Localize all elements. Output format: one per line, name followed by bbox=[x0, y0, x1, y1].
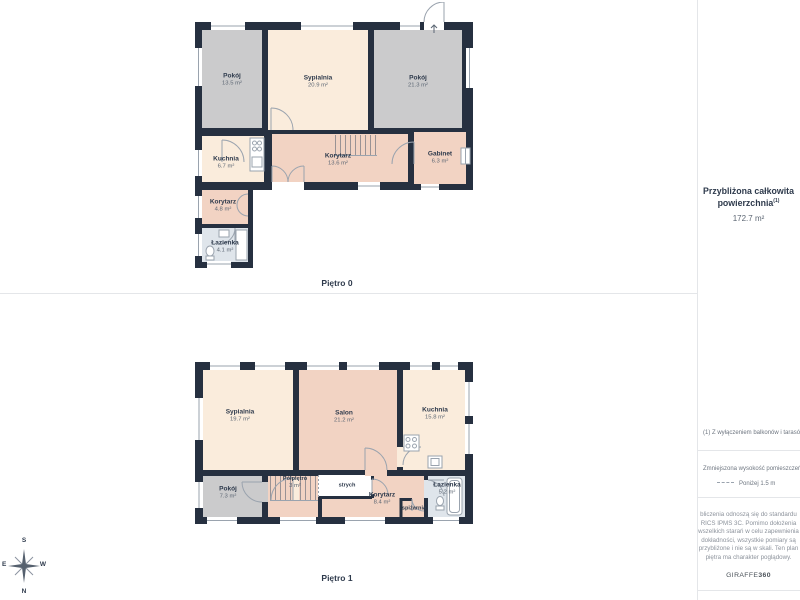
sidebar: Przybliżona całkowita powierzchnia(1) 17… bbox=[697, 0, 800, 600]
room-name: Pokój bbox=[408, 74, 428, 82]
room-name: Korytarz bbox=[325, 152, 351, 160]
room-name: Łazienka bbox=[211, 239, 238, 247]
floor1-plan: Sypialnia 19.7 m² Salon 21.2 m² Kuchnia … bbox=[195, 358, 475, 528]
room-area: 13.5 m² bbox=[222, 80, 242, 87]
room-label: Kuchnia 15.8 m² bbox=[422, 406, 448, 422]
room-area: 19.7 m² bbox=[226, 416, 255, 423]
brand-name: GIRAFFE bbox=[726, 572, 758, 579]
room-label: Kuchnia 6.7 m² bbox=[213, 155, 239, 171]
legend-item: Poniżej 1.5 m bbox=[717, 481, 775, 487]
room-name: Korytarz bbox=[369, 491, 395, 499]
room-area: 5.2 m² bbox=[433, 489, 460, 496]
sidebar-section-divider bbox=[697, 590, 800, 591]
room-area: 7.3 m² bbox=[219, 493, 237, 500]
room-label: Półpiętro 3 m² bbox=[283, 476, 307, 490]
sidebar-section-divider bbox=[697, 497, 800, 498]
floor1-caption: Piętro 1 bbox=[257, 573, 417, 583]
room-name: Pokój bbox=[219, 485, 237, 493]
room-label: Sypialnia 19.7 m² bbox=[226, 408, 255, 424]
room-area: 4.8 m² bbox=[210, 206, 236, 213]
room-name: Półpiętro bbox=[283, 476, 307, 483]
section-divider bbox=[0, 293, 697, 294]
room-label: Łazienka 4.1 m² bbox=[211, 239, 238, 255]
compass: S E W N bbox=[2, 537, 46, 595]
room-area: 13.6 m² bbox=[325, 160, 351, 167]
room-label: Korytarz 4.8 m² bbox=[210, 198, 236, 214]
room-area: 15.8 m² bbox=[422, 414, 448, 421]
room-name: Pokój bbox=[222, 72, 242, 80]
room-area: 21.2 m² bbox=[334, 417, 354, 424]
room-label: Gabinet 6.3 m² bbox=[428, 150, 452, 166]
floor0-caption: Piętro 0 bbox=[257, 278, 417, 288]
room-label: Korytarz 13.6 m² bbox=[325, 152, 351, 168]
footnote-text: (1) Z wyłączeniem balkonów i tarasów bbox=[703, 430, 800, 436]
compass-north-label: N bbox=[2, 588, 46, 595]
disclaimer-line: dokładności, wszystkie pomiary są bbox=[697, 537, 800, 546]
room-label: strych bbox=[339, 483, 356, 490]
disclaimer-line: wszelkich starań w celu zapewnienia bbox=[697, 528, 800, 537]
total-area-title-line2: powierzchnia(1) bbox=[697, 198, 800, 210]
room-name: Kuchnia bbox=[422, 406, 448, 414]
room-label: Sypialnia 20.9 m² bbox=[304, 74, 333, 90]
footnote-marker: (1) bbox=[773, 198, 779, 204]
disclaimer-text: bliczenia odnoszą się do standardu RICS … bbox=[697, 511, 800, 563]
brand-suffix: 360 bbox=[758, 572, 771, 579]
room-name: Sypialnia bbox=[226, 408, 255, 416]
total-area-value: 172.7 m² bbox=[697, 214, 800, 223]
room-area: 6.3 m² bbox=[428, 158, 452, 165]
room-name: Sypialnia bbox=[304, 74, 333, 82]
room-area: 20.9 m² bbox=[304, 82, 333, 89]
room-name: Salon bbox=[334, 409, 354, 417]
room-label: Pokój 7.3 m² bbox=[219, 485, 237, 501]
room-name: strych bbox=[339, 483, 356, 490]
room-label: Pokój 13.5 m² bbox=[222, 72, 242, 88]
brand-logo: GIRAFFE360 bbox=[697, 572, 800, 579]
room-label: Łazienka 5.2 m² bbox=[433, 481, 460, 497]
room-area: 21.3 m² bbox=[408, 82, 428, 89]
room-name: Korytarz bbox=[210, 198, 236, 206]
room-area: 6.7 m² bbox=[213, 163, 239, 170]
compass-south-label: S bbox=[2, 537, 46, 544]
room-name: spiżarnia bbox=[402, 506, 426, 513]
room-label: Pokój 21.3 m² bbox=[408, 74, 428, 90]
disclaimer-line: RICS IPMS 3C. Pomimo dołożenia bbox=[697, 520, 800, 529]
disclaimer-line: przybliżone i nie są w skali. Ten plan bbox=[697, 545, 800, 554]
room-label: spiżarnia bbox=[402, 506, 426, 513]
disclaimer-line: piętra ma charakter poglądowy. bbox=[697, 554, 800, 563]
floor0-plan: Pokój 13.5 m² Sypialnia 20.9 m² Pokój 21… bbox=[195, 2, 475, 272]
room-name: Gabinet bbox=[428, 150, 452, 158]
room-name: Kuchnia bbox=[213, 155, 239, 163]
room-area: 4.1 m² bbox=[211, 247, 238, 254]
legend-title: Zmniejszona wysokość pomieszczeń bbox=[703, 466, 800, 472]
room-name: Łazienka bbox=[433, 481, 460, 489]
room-area: 3 m² bbox=[283, 483, 307, 490]
room-label: Salon 21.2 m² bbox=[334, 409, 354, 425]
room-label: Korytarz 8.4 m² bbox=[369, 491, 395, 507]
sidebar-section-divider bbox=[697, 450, 800, 451]
legend-item-label: Poniżej 1.5 m bbox=[739, 481, 775, 487]
total-area-title-line1: Przybliżona całkowita bbox=[697, 186, 800, 198]
dashed-line-symbol bbox=[717, 482, 734, 484]
disclaimer-line: bliczenia odnoszą się do standardu bbox=[697, 511, 800, 520]
compass-star-icon bbox=[2, 544, 46, 588]
total-area-block: Przybliżona całkowita powierzchnia(1) 17… bbox=[697, 186, 800, 223]
room-area: 8.4 m² bbox=[369, 499, 395, 506]
